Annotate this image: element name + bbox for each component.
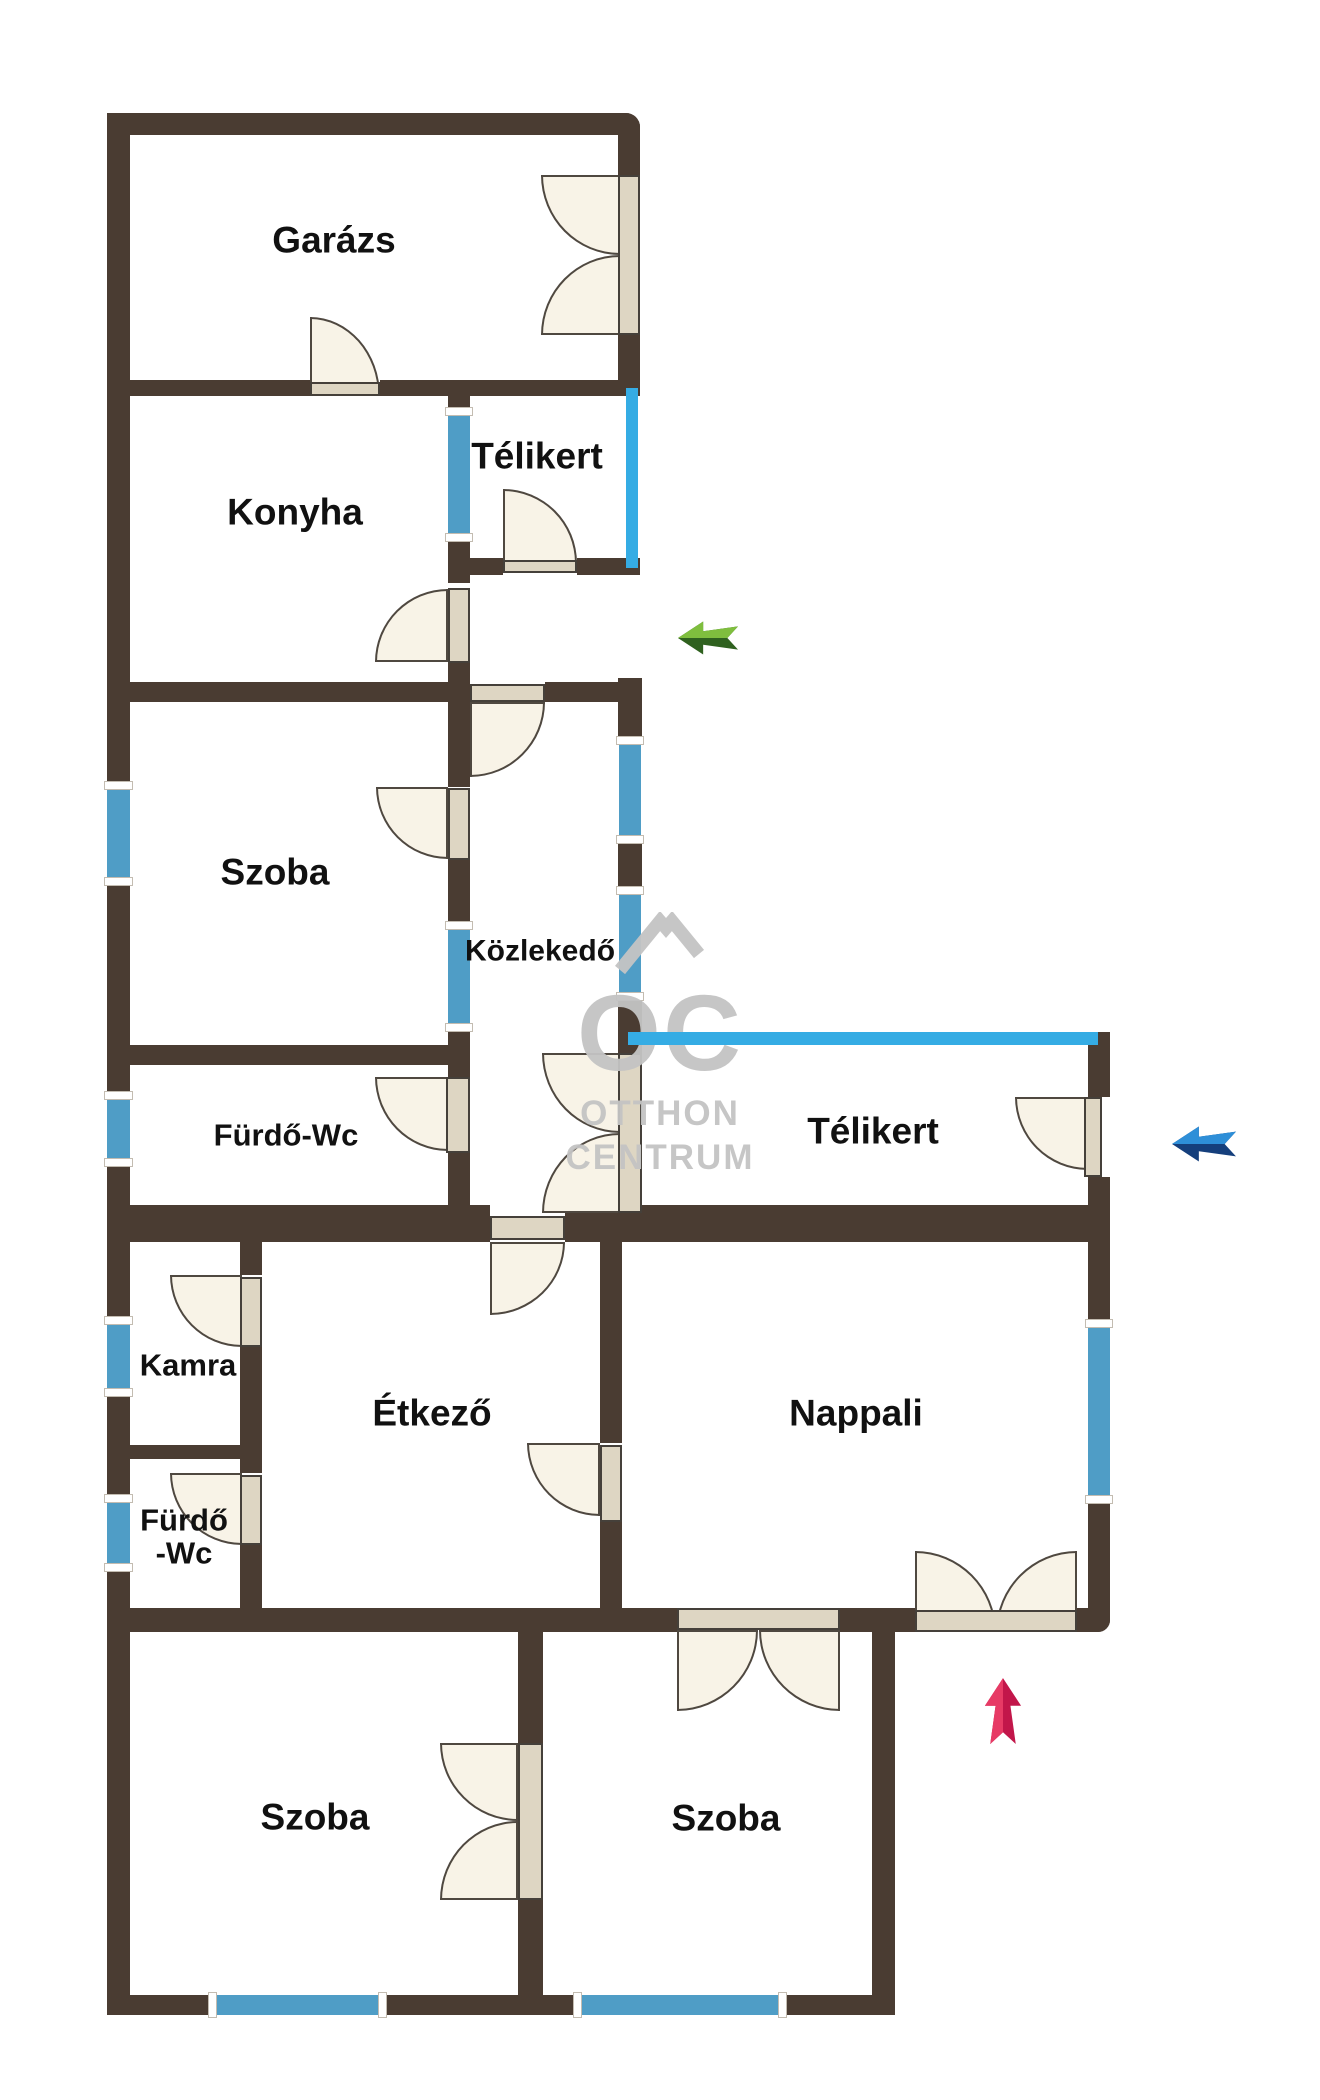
window bbox=[107, 1320, 130, 1393]
wall-segment bbox=[600, 1242, 622, 1443]
door-swing bbox=[170, 1275, 242, 1347]
room-label-furdo-wc-lower-line1: Fürdő bbox=[140, 1504, 228, 1537]
window bbox=[448, 411, 470, 538]
glass-wall bbox=[626, 388, 638, 568]
red-main-entrance-arrow-icon bbox=[976, 1677, 1030, 1745]
door-swing bbox=[440, 1743, 518, 1821]
door-swing bbox=[440, 1821, 518, 1900]
door-leaf bbox=[470, 684, 545, 702]
wall-segment bbox=[518, 1632, 543, 1743]
window bbox=[1088, 1323, 1110, 1500]
room-label-szoba-upper: Szoba bbox=[221, 854, 330, 893]
door-leaf bbox=[448, 588, 470, 663]
floor-plan: Garázs Konyha Télikert Szoba Közlekedő F… bbox=[0, 0, 1320, 2100]
wall-segment bbox=[240, 1545, 262, 1608]
window bbox=[107, 1498, 130, 1568]
room-label-kamra: Kamra bbox=[140, 1350, 237, 1383]
window bbox=[107, 785, 130, 882]
door-swing bbox=[503, 489, 577, 563]
door-leaf bbox=[677, 1608, 840, 1630]
door-swing bbox=[375, 589, 448, 662]
wall-segment bbox=[618, 678, 642, 740]
door-swing bbox=[470, 702, 545, 777]
wall-segment bbox=[107, 1445, 262, 1459]
door-swing bbox=[375, 1077, 448, 1151]
window bbox=[577, 1995, 783, 2015]
door-leaf bbox=[240, 1475, 262, 1545]
room-label-furdo-wc-lower: Fürdő -Wc bbox=[140, 1504, 228, 1569]
wall-segment bbox=[448, 538, 470, 583]
door-leaf bbox=[618, 175, 640, 335]
wall-segment bbox=[1088, 1177, 1110, 1218]
wall-segment bbox=[107, 1568, 130, 2015]
door-leaf bbox=[915, 1610, 1077, 1632]
door-leaf bbox=[518, 1743, 543, 1900]
room-label-konyha: Konyha bbox=[227, 494, 363, 533]
door-leaf bbox=[240, 1277, 262, 1347]
green-entrance-arrow-icon bbox=[677, 618, 739, 658]
door-swing bbox=[677, 1630, 758, 1711]
door-swing bbox=[1015, 1097, 1088, 1170]
door-swing bbox=[541, 175, 620, 255]
wall-segment bbox=[107, 1045, 470, 1065]
wall-segment bbox=[107, 1995, 212, 2015]
wall-segment bbox=[618, 113, 640, 175]
wall-segment bbox=[840, 1608, 915, 1632]
room-label-etkezo: Étkező bbox=[372, 1395, 491, 1434]
wall-segment bbox=[618, 840, 642, 890]
wall-segment bbox=[107, 1205, 490, 1242]
door-leaf bbox=[310, 382, 380, 396]
door-swing bbox=[542, 1133, 620, 1213]
wall-segment bbox=[107, 1608, 677, 1632]
wall-segment bbox=[380, 380, 640, 396]
room-label-garazs: Garázs bbox=[272, 222, 395, 261]
room-label-furdo-wc-upper: Fürdő-Wc bbox=[214, 1120, 359, 1153]
wall-segment bbox=[240, 1242, 262, 1275]
door-swing bbox=[376, 787, 448, 859]
room-label-kozlekedo: Közlekedő bbox=[465, 935, 615, 967]
door-leaf bbox=[446, 1077, 470, 1153]
wall-segment bbox=[1088, 1500, 1110, 1632]
wall-segment bbox=[383, 1995, 577, 2015]
door-leaf bbox=[503, 560, 577, 573]
blue-telikert-arrow-icon bbox=[1171, 1122, 1237, 1166]
room-label-szoba-bottom-left: Szoba bbox=[261, 1799, 370, 1838]
door-swing bbox=[759, 1630, 840, 1711]
door-swing bbox=[527, 1443, 600, 1516]
window bbox=[619, 740, 641, 840]
window bbox=[107, 1095, 130, 1163]
door-swing bbox=[541, 255, 620, 335]
wall-segment bbox=[107, 682, 470, 702]
room-label-szoba-bottom-right: Szoba bbox=[672, 1800, 781, 1839]
room-label-nappali: Nappali bbox=[789, 1395, 923, 1434]
door-leaf bbox=[600, 1445, 622, 1522]
wall-segment bbox=[470, 558, 503, 575]
room-label-telikert-upper: Télikert bbox=[471, 438, 603, 477]
door-leaf bbox=[448, 788, 470, 860]
door-swing bbox=[490, 1242, 565, 1315]
door-swing bbox=[542, 1053, 620, 1133]
wall-segment bbox=[107, 380, 310, 396]
glass-wall bbox=[628, 1032, 1098, 1045]
wall-segment bbox=[565, 1205, 1110, 1242]
window bbox=[212, 1995, 383, 2015]
wall-segment bbox=[783, 1995, 895, 2015]
door-leaf bbox=[490, 1216, 565, 1240]
door-leaf bbox=[618, 1053, 642, 1213]
wall-segment bbox=[1088, 1242, 1110, 1323]
window bbox=[619, 890, 641, 997]
room-label-telikert-right: Télikert bbox=[807, 1113, 939, 1152]
wall-segment bbox=[872, 1630, 895, 2015]
wall-segment bbox=[448, 860, 470, 925]
wall-segment bbox=[448, 1153, 470, 1210]
room-label-furdo-wc-lower-line2: -Wc bbox=[140, 1537, 228, 1570]
wall-segment bbox=[107, 113, 640, 135]
door-leaf bbox=[1084, 1097, 1102, 1177]
